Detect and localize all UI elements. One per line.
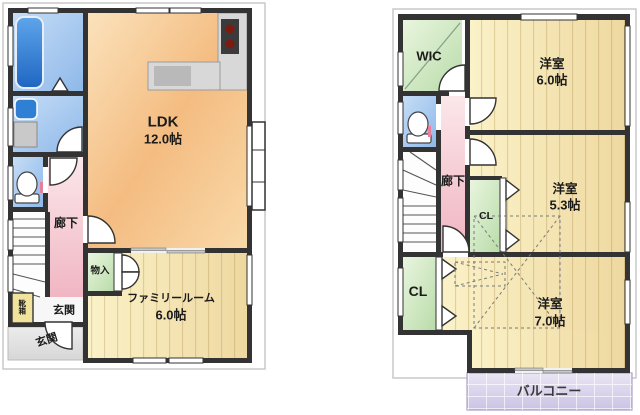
bedroom1-label: 洋室 (539, 58, 564, 71)
wic-label: WIC (416, 50, 441, 63)
entrance-hall-label: 玄関 (53, 306, 75, 317)
bay-window (247, 122, 265, 210)
ldk-label: LDK (148, 115, 179, 130)
kitchen-sink (154, 66, 191, 86)
washing-machine (14, 122, 37, 147)
wash-basin (15, 99, 37, 119)
floorplan-image: LDK 12.0帖 ファミリールーム 6.0帖 廊下 物入 玄関 玄関 靴箱 W… (0, 0, 640, 415)
bedroom2-label: 洋室 (552, 183, 577, 196)
balcony-label: バルコニー (517, 385, 582, 398)
kitchen-stove (221, 19, 239, 54)
bedroom3-size-label: 7.0帖 (534, 315, 565, 328)
shoe-cabinet-label: 靴箱 (18, 300, 26, 315)
corridor-2f-label: 廊下 (441, 175, 465, 187)
family-room-size-label: 6.0帖 (155, 309, 186, 322)
closet1-label: CL (479, 211, 493, 222)
bedroom1-size-label: 6.0帖 (536, 74, 567, 87)
ldk-size-label: 12.0帖 (144, 133, 182, 146)
bathtub (16, 17, 43, 88)
closet2-label: CL (409, 284, 428, 298)
floor2-plan (393, 9, 636, 410)
family-room-label: ファミリールーム (127, 294, 215, 305)
corridor-1f-label: 廊下 (54, 217, 78, 229)
bedroom2-size-label: 5.3帖 (549, 199, 580, 212)
bedroom3-label: 洋室 (537, 298, 562, 311)
balcony-sliding-door (515, 368, 572, 373)
floor1-plan (3, 3, 265, 369)
storage-label: 物入 (90, 266, 109, 276)
sliding-door-ldk-family (131, 248, 205, 253)
